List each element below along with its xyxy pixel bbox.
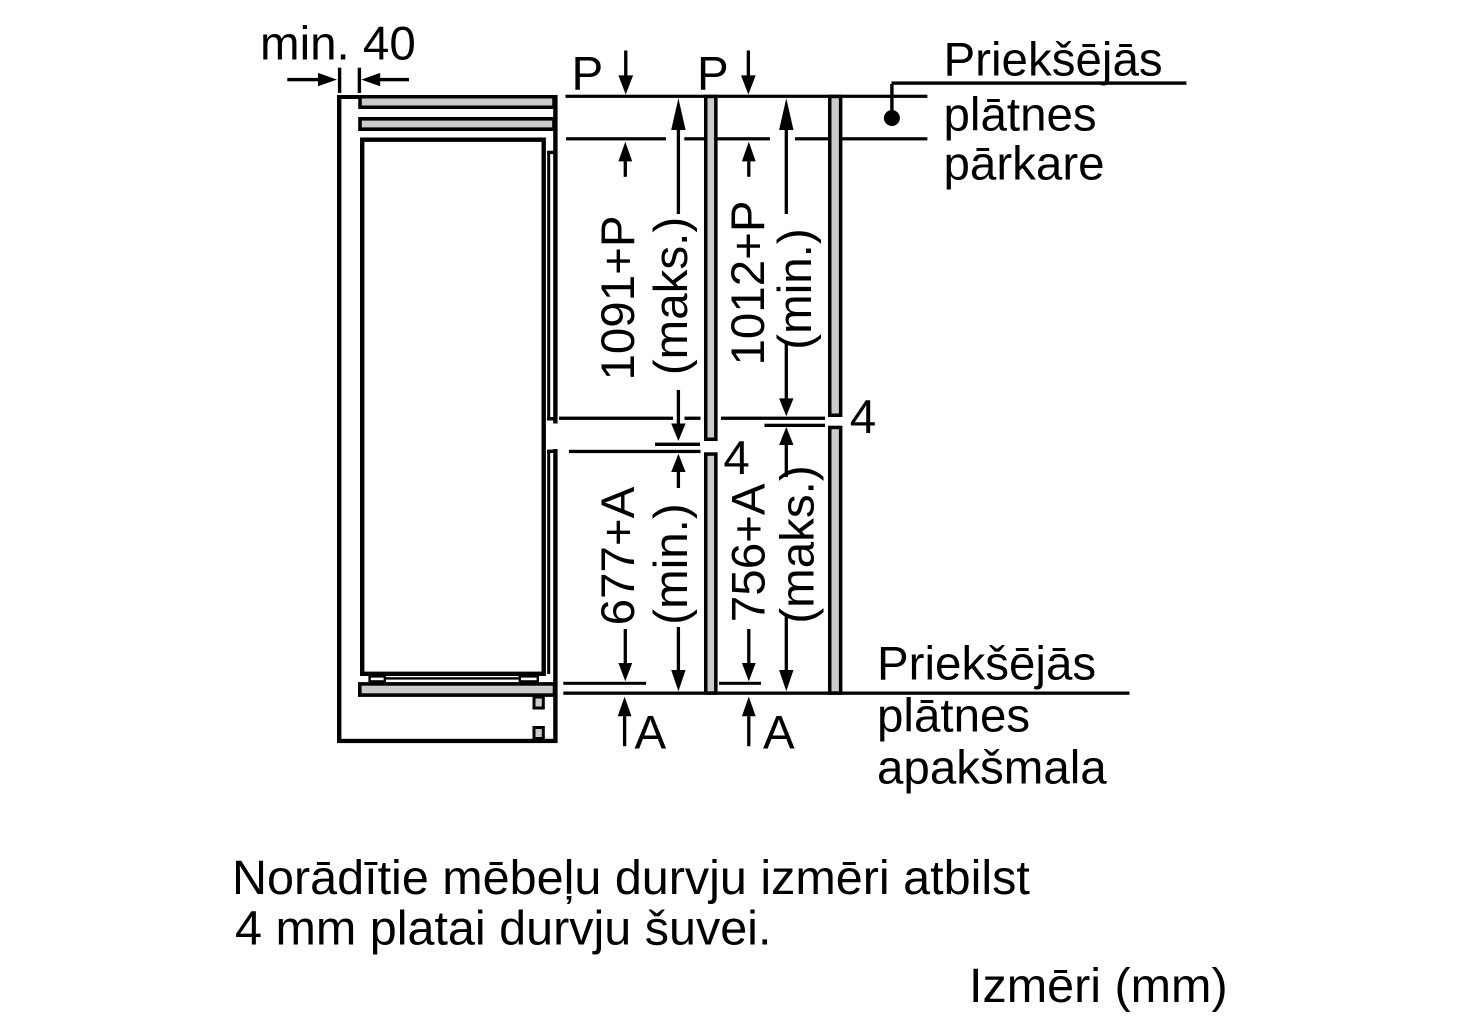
- svg-text:(min.): (min.): [769, 228, 822, 349]
- svg-text:677+A: 677+A: [592, 486, 645, 625]
- svg-text:Priekšējās: Priekšējās: [944, 34, 1163, 87]
- svg-text:pārkare: pārkare: [944, 138, 1105, 191]
- svg-text:P: P: [572, 48, 604, 101]
- svg-text:1012+P: 1012+P: [722, 200, 775, 365]
- svg-text:4: 4: [850, 391, 876, 444]
- svg-text:1091+P: 1091+P: [592, 215, 645, 380]
- svg-text:4 mm platai durvju šuvei.: 4 mm platai durvju šuvei.: [235, 901, 771, 955]
- svg-text:apakšmala: apakšmala: [877, 742, 1107, 795]
- svg-text:plātnes: plātnes: [877, 689, 1030, 742]
- svg-text:(min.): (min.): [645, 503, 698, 624]
- svg-text:Izmēri (mm): Izmēri (mm): [969, 959, 1228, 1013]
- svg-text:756+A: 756+A: [723, 483, 776, 622]
- svg-text:A: A: [635, 707, 667, 760]
- svg-text:Norādītie mēbeļu durvju izmēri: Norādītie mēbeļu durvju izmēri atbilst: [232, 851, 1030, 905]
- svg-text:plātnes: plātnes: [944, 89, 1097, 142]
- svg-text:(maks.): (maks.): [645, 217, 698, 375]
- svg-text:P: P: [697, 48, 729, 101]
- svg-text:Priekšējās: Priekšējās: [877, 638, 1096, 691]
- svg-text:(maks.): (maks.): [771, 465, 824, 623]
- svg-text:min. 40: min. 40: [260, 18, 416, 71]
- svg-text:A: A: [763, 707, 795, 760]
- svg-text:4: 4: [723, 432, 749, 485]
